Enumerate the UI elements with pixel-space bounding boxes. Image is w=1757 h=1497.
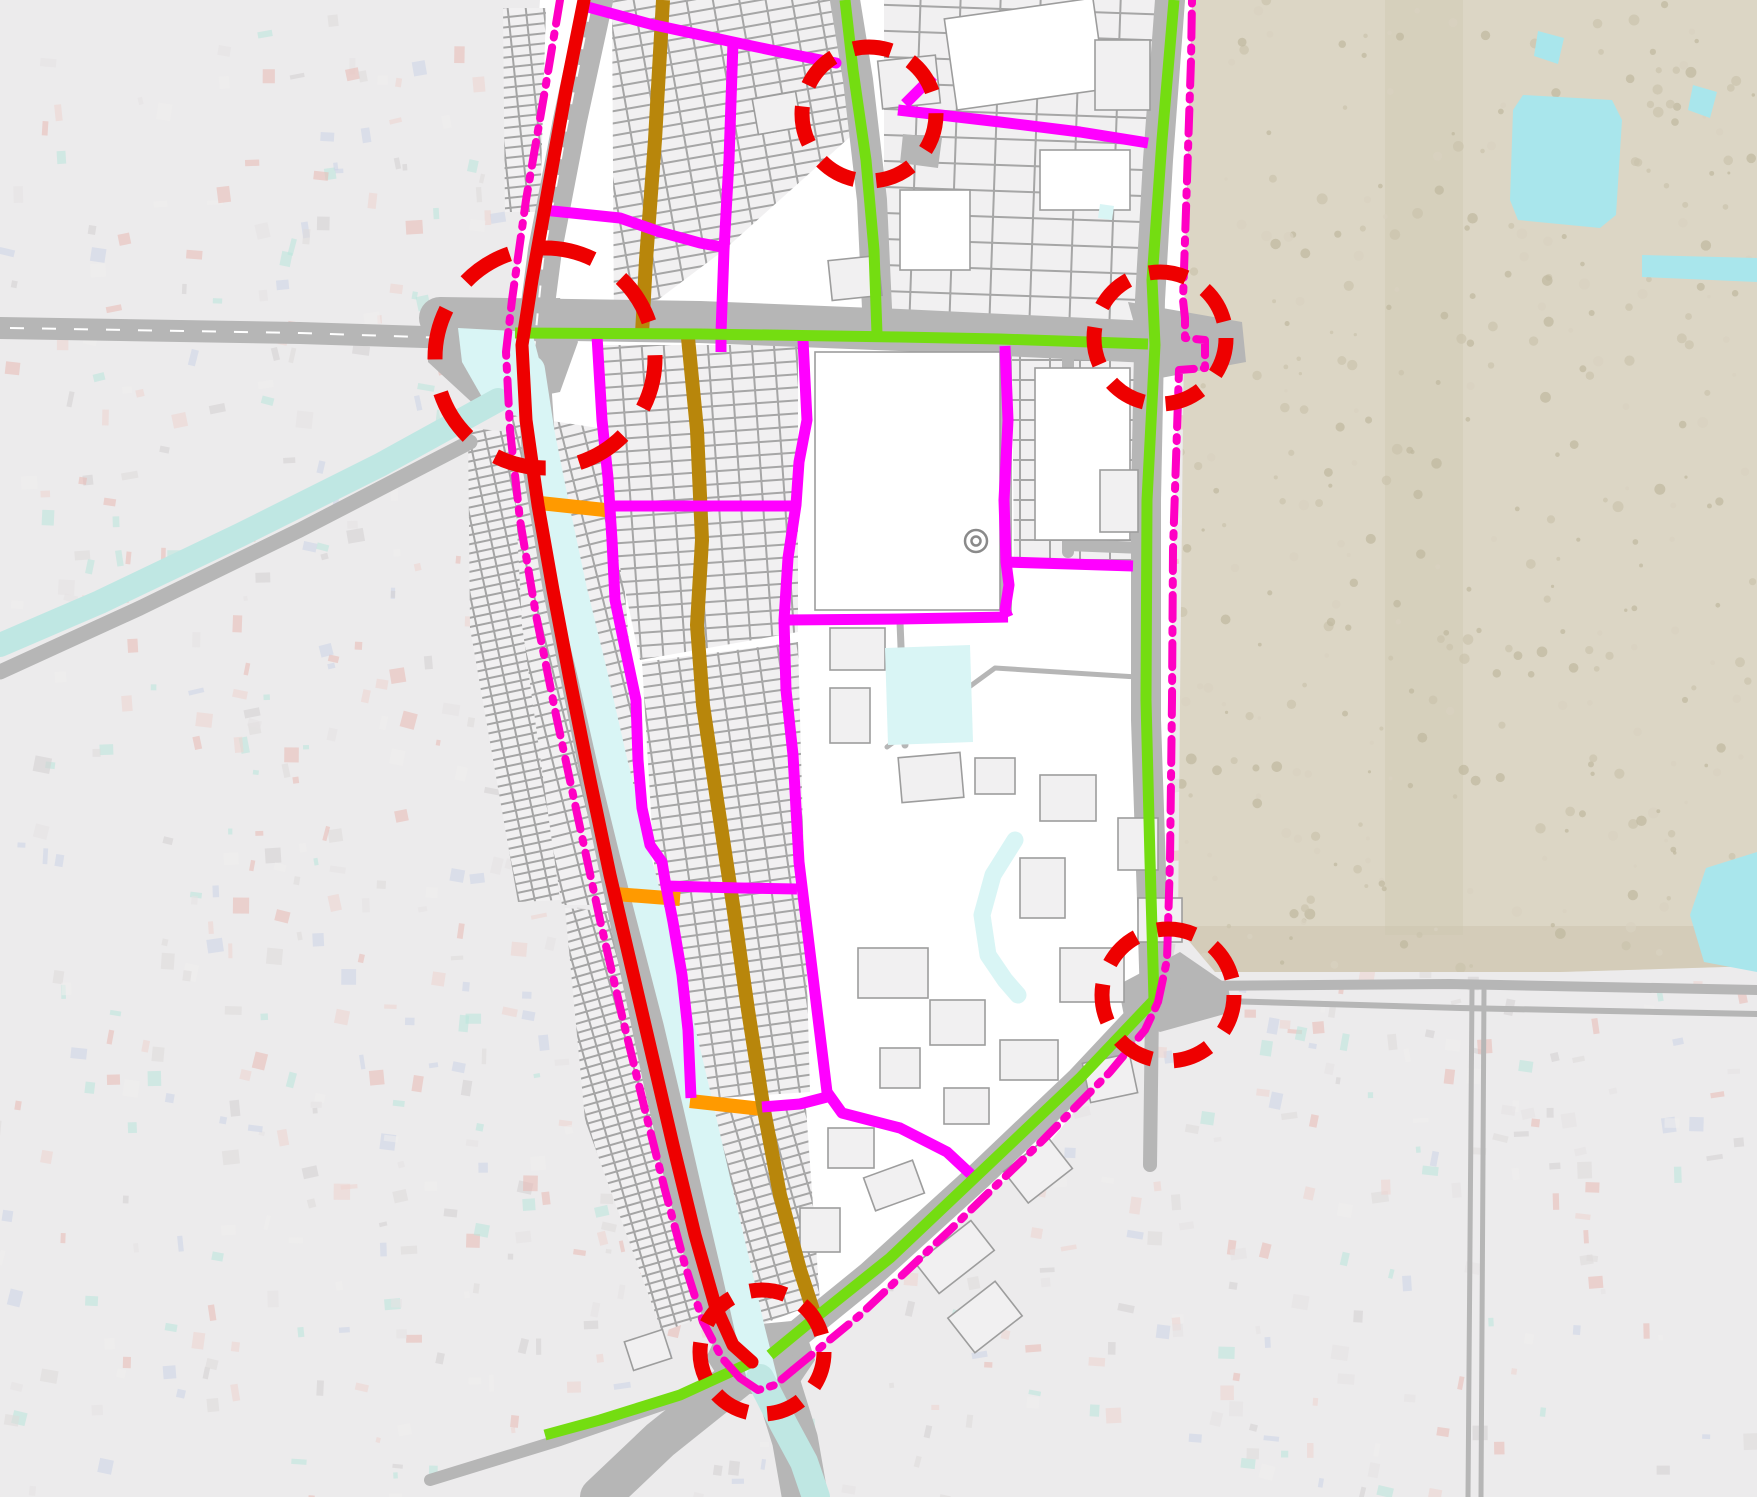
satellite-speck [369,1070,385,1086]
satellite-speck [1444,1069,1455,1085]
building [1020,858,1065,918]
satellite-speck [397,1423,412,1436]
satellite-speck [1674,1167,1682,1183]
satellite-speck [424,1182,437,1192]
satellite-speck [234,737,244,753]
satellite-speck [1246,1448,1259,1459]
building [944,1088,989,1124]
satellite-speck [424,656,433,670]
satellite-speck [363,311,381,325]
proposed-road-magenta-cross-1 [666,886,797,889]
satellite-speck [1416,1146,1421,1153]
satellite-speck [1260,1040,1273,1057]
satellite-speck [1147,1231,1162,1245]
park-area [1155,0,1757,973]
satellite-speck [1040,1267,1055,1272]
park-polygon [1178,0,1757,972]
satellite-speck [112,516,119,527]
satellite-speck [523,1175,538,1191]
satellite-speck [1041,1277,1051,1287]
satellite-speck [401,1246,418,1255]
satellite-speck [1189,1433,1202,1442]
satellite-speck [554,1059,569,1066]
satellite-speck [148,1071,162,1086]
satellite-speck [1335,1077,1340,1084]
satellite-speck [213,298,222,304]
satellite-speck [245,159,259,166]
satellite-speck [508,1254,514,1260]
satellite-speck [355,642,363,650]
satellite-speck [1573,1325,1581,1335]
gray-road-east-vertical-b [1481,990,1484,1497]
proposed-road-magenta-block-jog [1006,562,1133,566]
satellite-speck [1511,1168,1519,1181]
satellite-speck [53,970,65,984]
satellite-speck [297,1327,304,1338]
satellite-speck [1064,1148,1075,1159]
satellite-speck [1540,1407,1546,1417]
satellite-speck [1488,1318,1494,1327]
satellite-speck [1404,1394,1416,1402]
satellite-speck [1281,1451,1288,1458]
satellite-speck [255,831,263,836]
satellite-speck [1381,1179,1391,1194]
satellite-speck [289,1237,303,1243]
satellite-speck [1727,1069,1740,1074]
satellite-speck [1233,1373,1241,1382]
satellite-speck [276,279,289,290]
gas-holder-inner [972,537,981,546]
building [830,628,885,670]
satellite-speck [1387,1034,1397,1051]
satellite-speck [476,1123,484,1132]
satellite-speck [449,868,465,883]
satellite-speck [405,1018,415,1026]
satellite-speck [1445,1039,1461,1052]
satellite-speck [104,1338,115,1350]
satellite-speck [61,982,71,995]
satellite-speck [1025,1344,1041,1353]
satellite-speck [393,549,400,556]
satellite-speck [600,1193,613,1204]
satellite-speck [313,171,328,181]
satellite-speck [1331,1345,1350,1362]
satellite-speck [389,1494,402,1497]
satellite-speck [191,896,198,905]
satellite-speck [40,58,57,68]
satellite-speck [458,1015,469,1032]
satellite-speck [206,938,224,954]
satellite-speck [1583,1230,1589,1243]
satellite-speck [263,69,275,83]
satellite-speck [154,201,168,208]
satellite-speck [433,208,439,219]
satellite-speck [732,1479,744,1484]
satellite-speck [377,75,387,84]
satellite-speck [1307,1443,1313,1458]
satellite-speck [222,1149,240,1165]
park-pond-large [1510,95,1622,228]
satellite-speck [1108,1342,1116,1355]
satellite-speck [1643,1323,1649,1339]
building [898,752,964,802]
satellite-speck [1220,1385,1234,1400]
satellite-speck [1106,1407,1122,1423]
satellite-speck [478,1163,488,1173]
building [975,758,1015,794]
satellite-speck [151,684,157,690]
building [828,1128,874,1168]
satellite-speck [58,579,75,595]
satellite-speck [391,591,396,598]
satellite-speck [1588,1276,1603,1289]
satellite-speck [1402,1276,1412,1292]
satellite-speck [212,885,219,897]
satellite-speck [4,1414,20,1427]
satellite-speck [107,1074,120,1085]
satellite-speck [221,1225,236,1236]
satellite-speck [299,843,307,853]
satellite-speck [13,186,23,203]
satellite-speck [406,1335,422,1343]
satellite-speck [476,187,482,202]
pond-tiny-ne [1098,204,1114,220]
satellite-speck [90,263,106,277]
proposed-road-orange-1 [540,503,614,511]
building [880,1048,920,1088]
satellite-speck [444,1208,458,1217]
satellite-speck [760,1442,769,1447]
satellite-speck [2,1210,14,1222]
satellite-speck [1494,1442,1505,1455]
satellite-speck [511,942,528,957]
satellite-speck [1229,1282,1238,1290]
satellite-speck [473,1283,480,1293]
satellite-speck [510,1415,519,1428]
satellite-speck [482,1048,487,1064]
satellite-speck [217,45,231,57]
satellite-speck [5,361,21,375]
building [1040,150,1130,210]
satellite-speck [206,1398,219,1412]
satellite-speck [255,572,270,582]
satellite-speck [223,852,238,865]
satellite-speck [128,1122,137,1133]
satellite-speck [1088,1357,1105,1367]
satellite-speck [484,210,491,225]
satellite-speck [384,1004,397,1009]
satellite-speck [316,1380,324,1396]
satellite-speck [311,1102,322,1108]
satellite-speck [171,412,188,429]
satellite-speck [606,1249,612,1254]
satellite-speck [191,1332,205,1350]
satellite-speck [1501,1105,1516,1116]
satellite-speck [451,956,464,961]
satellite-speck [40,1150,53,1164]
satellite-speck [984,1362,992,1368]
satellite-speck [17,842,25,847]
gray-road-west-horizontal [0,328,455,338]
satellite-speck [1577,1162,1592,1179]
satellite-speck [1337,1373,1355,1385]
satellite-speck [469,219,485,232]
satellite-speck [1547,1108,1554,1118]
satellite-speck [1026,1396,1039,1408]
satellite-speck [367,193,377,209]
satellite-speck [1511,1368,1517,1375]
satellite-speck [377,880,386,889]
satellite-speck [1553,1193,1560,1210]
satellite-speck [530,1156,546,1171]
satellite-speck [1218,1346,1235,1359]
satellite-speck [341,969,356,985]
satellite-speck [327,14,338,27]
satellite-speck [1244,1010,1255,1018]
satellite-speck [231,1341,240,1352]
satellite-speck [265,848,282,864]
satellite-speck [229,1100,240,1117]
satellite-speck [541,1192,550,1206]
satellite-speck [156,103,172,122]
satellite-speck [85,1296,98,1306]
satellite-speck [405,220,423,235]
satellite-speck [1514,1131,1529,1137]
satellite-speck [42,510,55,526]
satellite-speck [291,1459,307,1465]
satellite-speck [1229,1401,1243,1416]
satellite-speck [216,186,231,203]
satellite-speck [93,749,101,757]
satellite-speck [1265,1337,1271,1348]
satellite-speck [1230,1248,1247,1261]
satellite-speck [511,1427,516,1433]
satellite-speck [469,873,485,884]
satellite-speck [70,1047,87,1059]
satellite-speck [1689,1117,1704,1132]
satellite-speck [1664,1118,1679,1128]
satellite-speck [192,632,200,647]
satellite-speck [334,1009,350,1026]
satellite-speck [1313,1398,1319,1406]
satellite-speck [259,290,269,302]
satellite-speck [728,1461,740,1476]
satellite-speck [472,76,485,92]
satellite-speck [391,1299,402,1308]
building [1100,470,1138,532]
satellite-speck [260,1013,268,1020]
satellite-speck [1413,1118,1429,1123]
satellite-speck [243,596,248,601]
satellite-speck [1312,1021,1324,1034]
satellite-speck [283,457,295,463]
satellite-speck [489,1375,494,1392]
satellite-speck [317,216,330,230]
satellite-speck [1524,1333,1535,1345]
building [830,688,870,743]
satellite-speck [33,755,52,774]
satellite-speck [123,1196,129,1204]
satellite-speck [1451,1183,1461,1198]
satellite-speck [1743,1433,1757,1450]
building [1040,775,1096,821]
satellite-speck [596,1354,604,1363]
satellite-speck [208,921,214,934]
satellite-speck [1337,1203,1353,1218]
satellite-speck [474,1223,490,1238]
satellite-speck [122,386,132,393]
satellite-speck [333,162,338,170]
satellite-speck [161,953,175,970]
satellite-speck [931,1405,939,1410]
satellite-speck [91,1405,103,1416]
satellite-speck [195,712,213,728]
satellite-speck [253,770,259,775]
satellite-speck [396,1329,407,1338]
satellite-speck [1353,1310,1363,1322]
satellite-speck [1422,1166,1439,1177]
satellite-speck [389,667,406,684]
satellite-speck [292,777,299,784]
satellite-speck [133,1243,139,1253]
satellite-speck [389,748,406,766]
satellite-speck [1518,1060,1533,1073]
satellite-speck [522,992,532,999]
satellite-speck [455,556,460,564]
satellite-speck [464,1291,470,1299]
satellite-speck [303,745,309,749]
satellite-speck [1601,1289,1606,1295]
satellite-speck [57,151,67,164]
satellite-speck [312,933,324,947]
satellite-speck [122,1079,140,1098]
satellite-speck [182,284,187,294]
satellite-speck [538,1034,549,1051]
satellite-speck [1585,1182,1599,1193]
satellite-speck [233,897,249,913]
satellite-speck [232,615,242,632]
satellite-speck [165,1093,175,1103]
satellite-speck [84,1081,95,1093]
satellite-speck [347,521,358,529]
satellite-speck [536,1338,541,1354]
satellite-speck [266,948,283,965]
satellite-speck [462,982,470,992]
building [752,91,802,134]
satellite-speck [228,943,232,958]
satellite-speck [393,1472,398,1478]
building [858,948,928,998]
satellite-speck [1156,1324,1171,1339]
building [930,1000,985,1045]
satellite-speck [334,1184,351,1200]
satellite-speck [1531,1118,1540,1127]
proposed-road-magenta-south-horizontal [786,617,1008,620]
satellite-speck [380,1243,387,1257]
satellite-speck [21,476,38,490]
satellite-speck [11,600,24,609]
satellite-speck [302,229,310,245]
building [1095,40,1150,110]
gray-strip-compound-c [1068,545,1142,548]
satellite-speck [339,1327,350,1333]
satellite-speck [426,887,438,898]
satellite-speck [186,250,203,260]
satellite-speck [228,829,232,835]
satellite-speck [1090,1404,1100,1416]
pond-mid [885,645,973,745]
satellite-speck [1702,1434,1710,1439]
satellite-speck [1733,1137,1744,1147]
building [815,352,1000,610]
satellite-speck [54,671,66,683]
satellite-speck [375,679,388,690]
satellite-speck [328,828,344,843]
satellite-speck [362,898,370,912]
satellite-speck [219,76,230,89]
satellite-speck [127,639,138,653]
satellite-speck [151,1047,164,1062]
satellite-speck [121,695,133,711]
satellite-speck [1561,1112,1577,1128]
satellite-speck [182,970,191,981]
proposed-road-magenta-block-vertical [1004,346,1009,617]
city-plan-map-stage [0,0,1757,1497]
satellite-speck [313,1108,318,1114]
satellite-speck [567,1381,581,1392]
satellite-speck [99,744,113,755]
satellite-speck [402,164,407,171]
satellite-speck [123,1357,131,1368]
satellite-speck [1658,1335,1663,1341]
satellite-speck [42,121,49,136]
satellite-speck [1549,1162,1560,1169]
satellite-speck [1171,1194,1181,1210]
satellite-speck [1280,1020,1291,1029]
city-plan-map [0,0,1757,1497]
satellite-speck [295,411,313,429]
satellite-speck [320,132,334,142]
satellite-speck [713,1465,723,1476]
satellite-speck [284,747,299,762]
satellite-speck [29,1486,36,1496]
satellite-speck [515,1231,531,1244]
satellite-speck [335,1281,343,1291]
satellite-speck [454,46,465,63]
building [800,1208,840,1252]
satellite-speck [431,971,446,986]
satellite-speck [97,1458,114,1475]
satellite-speck [889,1383,894,1389]
satellite-speck [117,233,131,246]
satellite-speck [163,1365,177,1379]
satellite-speck [90,247,107,263]
satellite-speck [102,409,109,425]
satellite-speck [78,477,87,485]
satellite-speck [412,60,427,76]
satellite-speck [584,1321,599,1330]
gray-road-southeast-junction-stub [1150,1008,1152,1165]
satellite-speck [40,490,50,497]
satellite-speck [390,284,404,295]
satellite-speck [219,1116,227,1124]
satellite-speck [1153,1181,1161,1191]
satellite-speck [1172,1324,1183,1337]
satellite-speck [1030,1227,1043,1239]
satellite-speck [1200,1111,1215,1126]
building [1000,1040,1058,1080]
satellite-speck [1368,1092,1373,1098]
